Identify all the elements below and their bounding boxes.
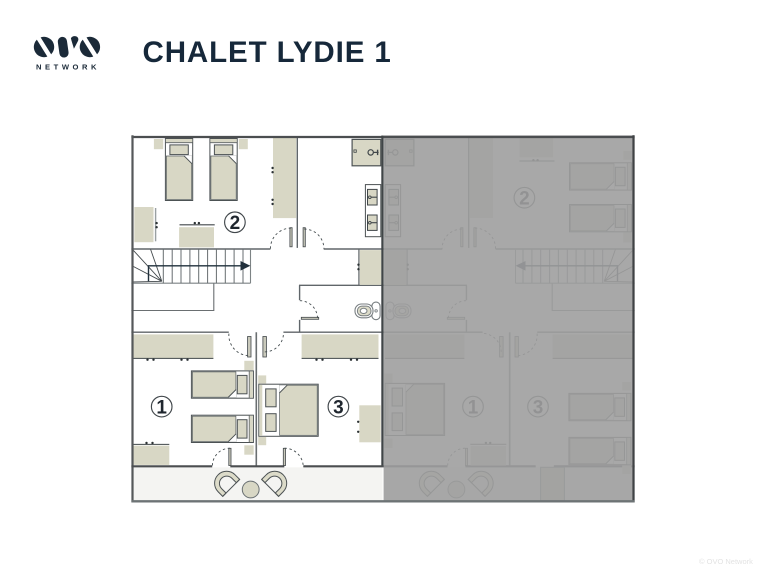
svg-text:NETWORK: NETWORK (36, 63, 100, 72)
svg-text:© OVO Network: © OVO Network (699, 557, 753, 566)
svg-text:1: 1 (156, 398, 167, 419)
svg-text:2: 2 (230, 213, 241, 234)
svg-text:3: 3 (333, 398, 344, 419)
svg-text:CHALET LYDIE 1: CHALET LYDIE 1 (143, 36, 392, 69)
